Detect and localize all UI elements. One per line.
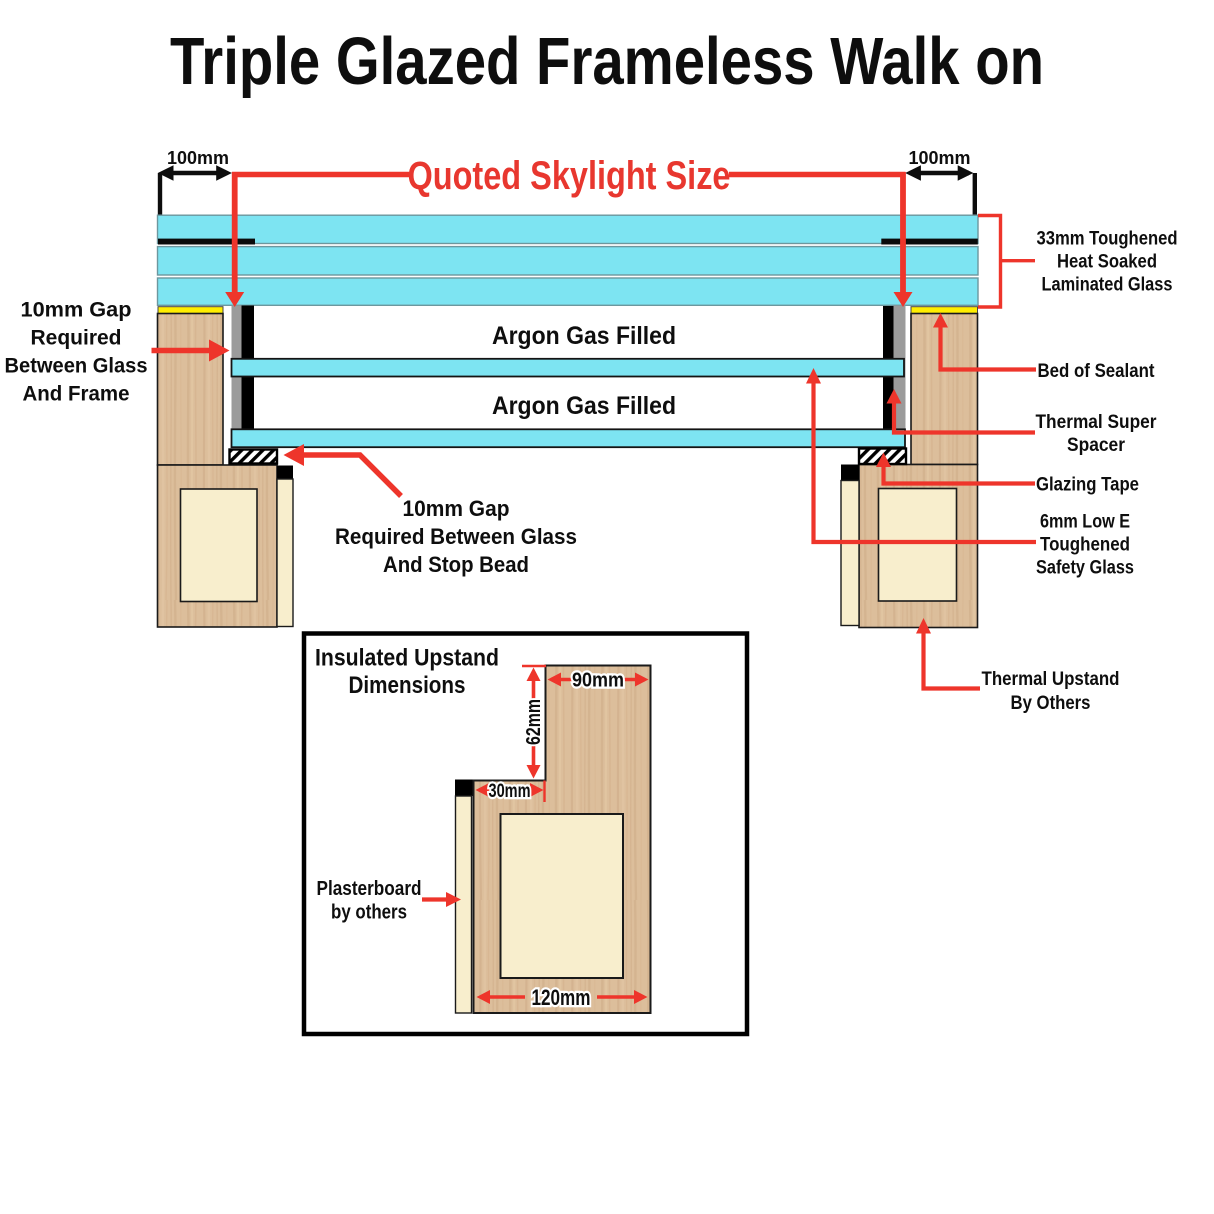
svg-text:Required Between Glass: Required Between Glass [335, 524, 577, 549]
svg-text:Dimensions: Dimensions [349, 672, 466, 699]
svg-text:Required: Required [31, 327, 122, 350]
svg-text:Triple Glazed Frameless Walk o: Triple Glazed Frameless Walk on [170, 24, 1044, 99]
svg-text:33mm Toughened: 33mm Toughened [1037, 228, 1178, 249]
svg-text:90mm: 90mm [572, 670, 624, 692]
svg-text:Between Glass: Between Glass [5, 355, 148, 378]
svg-text:100mm: 100mm [909, 148, 971, 168]
svg-text:10mm Gap: 10mm Gap [21, 299, 132, 322]
svg-text:Laminated Glass: Laminated Glass [1042, 274, 1173, 295]
svg-text:Thermal Upstand: Thermal Upstand [982, 669, 1120, 690]
svg-text:Toughened: Toughened [1040, 534, 1130, 555]
svg-text:Plasterboard: Plasterboard [317, 878, 422, 900]
svg-text:And Frame: And Frame [23, 383, 130, 406]
svg-text:62mm: 62mm [523, 699, 545, 745]
svg-text:Thermal Super: Thermal Super [1036, 412, 1158, 433]
svg-text:100mm: 100mm [167, 148, 229, 168]
svg-text:Spacer: Spacer [1067, 435, 1126, 456]
svg-text:6mm Low E: 6mm Low E [1040, 511, 1130, 532]
svg-text:Bed of Sealant: Bed of Sealant [1038, 361, 1156, 382]
svg-text:Argon Gas Filled: Argon Gas Filled [492, 392, 676, 420]
svg-text:Glazing Tape: Glazing Tape [1036, 474, 1139, 495]
svg-text:By Others: By Others [1011, 693, 1091, 714]
svg-text:Argon Gas Filled: Argon Gas Filled [492, 322, 676, 350]
svg-text:Quoted Skylight Size: Quoted Skylight Size [408, 154, 731, 198]
svg-text:And Stop Bead: And Stop Bead [383, 552, 529, 577]
svg-text:Heat Soaked: Heat Soaked [1057, 251, 1157, 272]
svg-text:Safety Glass: Safety Glass [1036, 557, 1134, 578]
svg-text:120mm: 120mm [532, 985, 591, 1010]
svg-text:10mm Gap: 10mm Gap [403, 496, 510, 521]
svg-text:by others: by others [331, 902, 407, 924]
svg-text:30mm: 30mm [489, 781, 531, 802]
svg-text:Insulated Upstand: Insulated Upstand [315, 645, 499, 672]
